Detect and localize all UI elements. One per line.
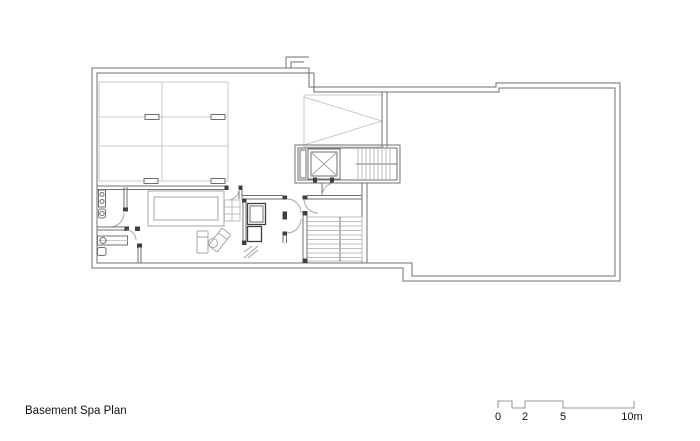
scale-label-0: 0 — [495, 411, 501, 423]
lounger — [197, 231, 208, 253]
lounger-rotated — [208, 228, 230, 252]
outer-wall-line — [92, 68, 620, 281]
loungers — [197, 228, 231, 253]
car-ramp — [304, 95, 384, 147]
door-arc — [110, 213, 124, 227]
door-arc — [228, 189, 239, 200]
scale-label-2: 2 — [522, 411, 528, 423]
elevator — [308, 149, 340, 183]
door-arc — [287, 199, 301, 213]
floor-plan-drawing: Basement Spa Plan 0 2 5 10m — [0, 0, 700, 441]
parking-room — [99, 82, 228, 184]
scale-bar: 0 2 5 10m — [495, 401, 643, 423]
spa-partition-walls — [97, 186, 362, 264]
upper-stair — [356, 149, 397, 179]
duct-shaft — [300, 150, 306, 178]
lobby-door — [322, 183, 335, 196]
roof-notch — [286, 57, 309, 68]
washroom-top — [99, 187, 129, 227]
washroom-fixtures — [99, 190, 106, 218]
pool-steps — [225, 200, 241, 221]
bench-diagonals — [244, 246, 258, 258]
washroom-bottom — [97, 227, 142, 264]
door-arc — [287, 219, 301, 233]
washroom-fixtures — [98, 236, 128, 256]
scale-bar-line — [498, 401, 634, 408]
inner-wall-line — [97, 73, 615, 276]
pool — [148, 191, 240, 226]
room-boundary — [99, 82, 228, 181]
building-outline — [92, 57, 620, 281]
door-arc — [304, 199, 318, 213]
sauna-box — [244, 204, 266, 259]
elevator-core — [295, 145, 400, 196]
sliding-door-markers — [144, 115, 225, 184]
floor-plan-sheet: Basement Spa Plan 0 2 5 10m — [0, 0, 700, 441]
door-arc — [322, 183, 335, 196]
plan-title: Basement Spa Plan — [25, 405, 127, 417]
lower-stair — [307, 217, 362, 261]
scale-label-10: 10m — [621, 411, 642, 423]
scale-label-5: 5 — [560, 411, 566, 423]
